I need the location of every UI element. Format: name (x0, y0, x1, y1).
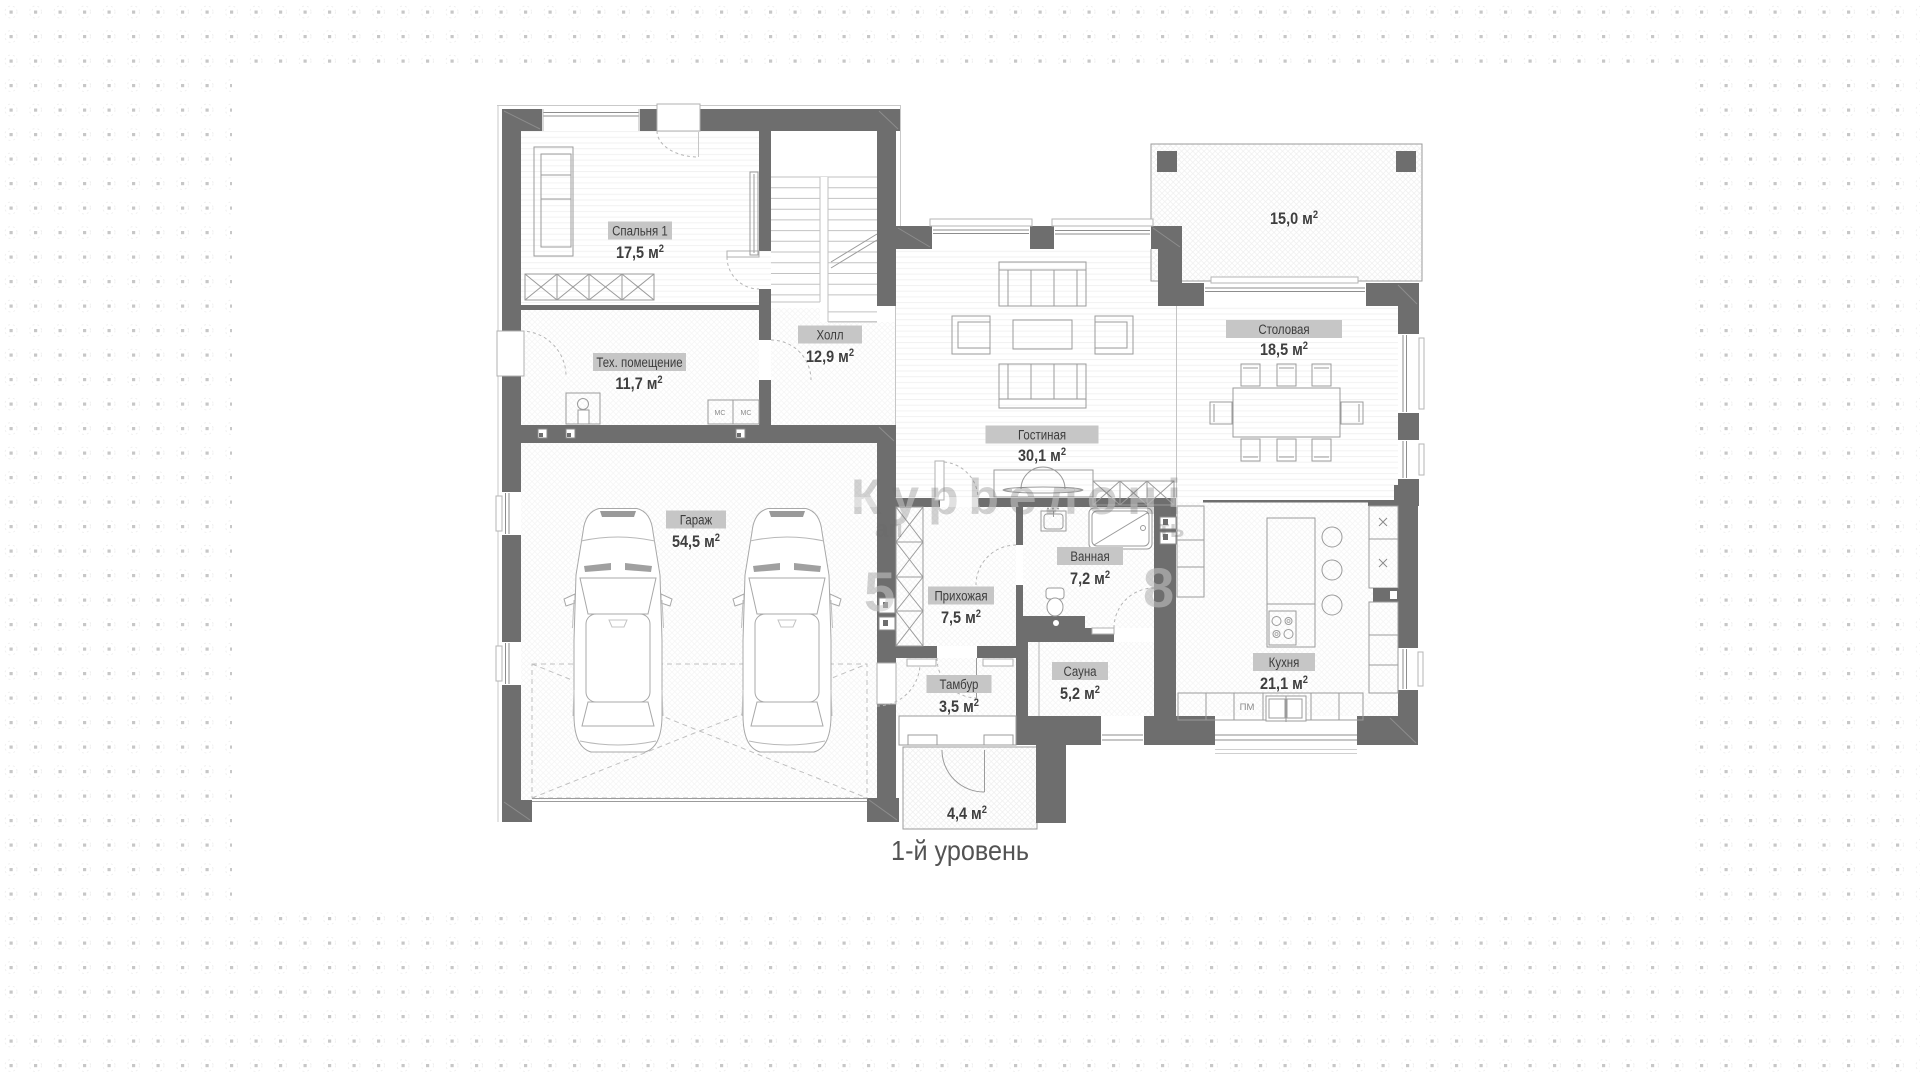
svg-text:МС: МС (741, 410, 752, 417)
svg-text:Прихожая: Прихожая (934, 588, 987, 603)
svg-text:Тамбур: Тамбур (940, 677, 979, 692)
svg-text:54,5 м2: 54,5 м2 (672, 532, 720, 551)
svg-text:18,5 м2: 18,5 м2 (1260, 340, 1308, 359)
svg-text:ПМ: ПМ (1240, 702, 1255, 713)
svg-text:5,2 м2: 5,2 м2 (1060, 684, 1100, 703)
svg-text:ап: ап (875, 516, 903, 543)
svg-text:11,7 м2: 11,7 м2 (615, 374, 662, 393)
svg-text:Столовая: Столовая (1258, 322, 1309, 337)
svg-text:7,2 м2: 7,2 м2 (1070, 569, 1110, 588)
svg-text:Ванная: Ванная (1070, 549, 1109, 564)
svg-text:Холл: Холл (817, 327, 844, 342)
svg-text:Гостиная: Гостиная (1018, 427, 1066, 442)
svg-text:Гараж: Гараж (680, 512, 713, 527)
svg-text:ть: ть (1158, 516, 1185, 543)
svg-text:17,5 м2: 17,5 м2 (616, 243, 664, 262)
svg-text:Кухня: Кухня (1269, 655, 1300, 670)
svg-text:Сауна: Сауна (1063, 664, 1096, 679)
svg-text:МС: МС (715, 410, 726, 417)
svg-text:7,5 м2: 7,5 м2 (941, 608, 981, 627)
svg-text:1-й уровень: 1-й уровень (891, 835, 1029, 867)
svg-text:15,0 м2: 15,0 м2 (1270, 209, 1318, 228)
svg-text:Тех. помещение: Тех. помещение (596, 355, 682, 370)
svg-text:21,1 м2: 21,1 м2 (1260, 674, 1308, 693)
svg-text:12,9 м2: 12,9 м2 (806, 347, 854, 366)
svg-text:3,5 м2: 3,5 м2 (939, 697, 979, 716)
svg-text:Спальня 1: Спальня 1 (612, 223, 668, 238)
svg-text:4,4 м2: 4,4 м2 (947, 804, 987, 823)
svg-text:30,1 м2: 30,1 м2 (1018, 446, 1066, 465)
